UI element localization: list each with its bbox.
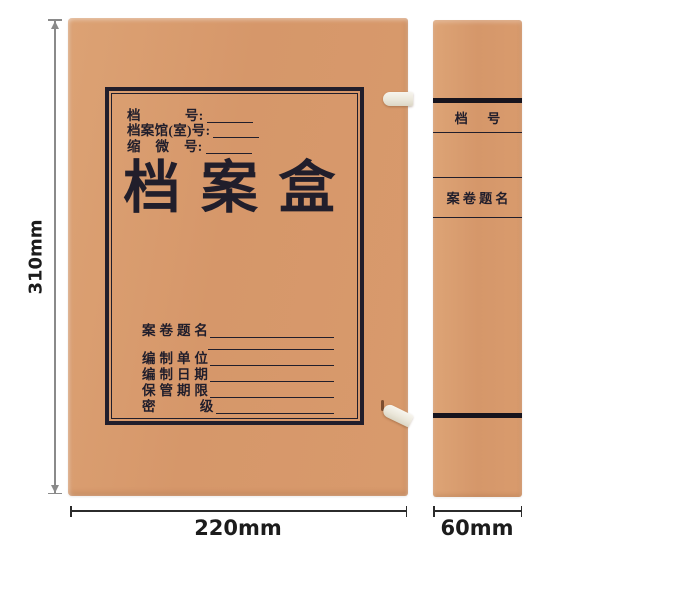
front-field-retention-period: 保 管 期 限: [112, 382, 357, 398]
elastic-strap-top: [383, 92, 413, 106]
printed-border-inner-frame: 档 号: 档案馆(室)号: 缩 微 号: 档案盒: [111, 93, 358, 419]
spine-bottom-band: [433, 413, 522, 418]
width-dimension-label: 220mm: [194, 516, 282, 540]
field-label: 档 号: [455, 108, 501, 127]
arrow-down-icon: [51, 485, 59, 493]
product-photo: 310mm 档 号: 档案馆(室)号: 缩 微 号:: [0, 0, 678, 589]
depth-dimension-line: [433, 510, 522, 512]
arrow-up-icon: [51, 21, 59, 29]
fill-in-line: [213, 126, 259, 138]
archive-box-front-cover: 档 号: 档案馆(室)号: 缩 微 号: 档案盒: [68, 18, 408, 496]
field-label: 编 制 单 位: [142, 352, 208, 366]
fill-in-line: [207, 111, 253, 123]
fill-in-line: [210, 327, 334, 338]
front-field-file-number: 档 号:: [127, 107, 347, 123]
fill-in-line: [206, 142, 252, 154]
fill-in-line: [210, 387, 334, 398]
fill-in-line: [216, 403, 334, 414]
height-dimension-line: [54, 19, 56, 494]
field-label: 案 卷 题 名: [142, 324, 208, 338]
front-field-security-level: 密 级: [112, 398, 357, 414]
front-header-fields: 档 号: 档案馆(室)号: 缩 微 号:: [127, 107, 347, 154]
front-field-microfilm-number: 缩 微 号:: [127, 138, 347, 154]
field-label: 密 级: [142, 400, 214, 414]
spine-file-number-row: 档 号: [433, 103, 522, 133]
field-label: 案 卷 题 名: [447, 188, 509, 207]
depth-dimension-label: 60mm: [441, 516, 514, 540]
front-field-volume-title: 案 卷 题 名: [112, 322, 357, 338]
box-title: 档案盒: [112, 156, 357, 222]
printed-border-frame: 档 号: 档案馆(室)号: 缩 微 号: 档案盒: [105, 87, 364, 425]
front-field-compile-date: 编 制 日 期: [112, 366, 357, 382]
field-label: 保 管 期 限: [142, 384, 208, 398]
height-dimension-label: 310mm: [26, 219, 47, 294]
fill-in-line: [208, 339, 334, 350]
front-body-fields: 案 卷 题 名 编 制 单 位 编 制 日 期: [112, 322, 357, 414]
spine-blank-row: [433, 133, 522, 178]
front-field-compiling-unit: 编 制 单 位: [112, 350, 357, 366]
front-field-archive-room-number: 档案馆(室)号:: [127, 123, 347, 139]
width-dimension-line: [70, 510, 407, 512]
field-label: 缩 微 号:: [127, 140, 203, 154]
spine-volume-title-row: 案 卷 题 名: [433, 178, 522, 218]
fill-in-line: [210, 371, 334, 382]
fill-in-line: [210, 355, 334, 366]
field-label: 编 制 日 期: [142, 368, 208, 382]
field-label: 档 号:: [127, 109, 204, 123]
archive-box-spine: 档 号 案 卷 题 名: [433, 20, 522, 497]
field-label: 档案馆(室)号:: [127, 124, 210, 138]
front-field-volume-title-line2: [112, 338, 357, 350]
